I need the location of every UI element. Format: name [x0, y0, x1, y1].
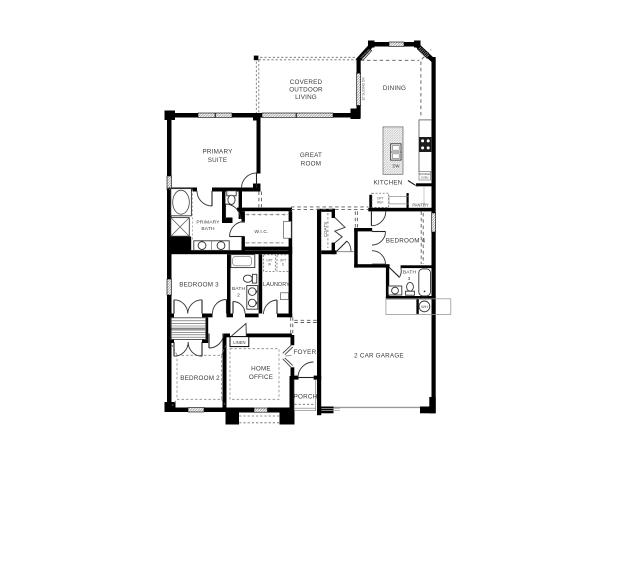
svg-text:REF: REF — [377, 201, 383, 205]
svg-text:PRIMARY: PRIMARY — [203, 149, 234, 156]
svg-text:KITCHEN: KITCHEN — [373, 180, 402, 187]
svg-text:BEDROOM 2: BEDROOM 2 — [180, 375, 220, 382]
svg-text:3: 3 — [408, 276, 411, 282]
svg-text:FOYER: FOYER — [294, 349, 317, 356]
svg-text:BATH: BATH — [232, 286, 246, 292]
svg-text:LIVING: LIVING — [295, 94, 317, 101]
svg-text:ROOM: ROOM — [301, 161, 321, 168]
svg-text:BATH: BATH — [201, 226, 215, 232]
svg-text:SUITE: SUITE — [208, 157, 228, 164]
svg-text:BATH: BATH — [403, 270, 417, 276]
svg-text:DW: DW — [393, 164, 400, 169]
svg-text:COATS: COATS — [323, 222, 328, 237]
svg-text:HOME: HOME — [251, 366, 271, 373]
svg-text:COVERED: COVERED — [290, 79, 323, 86]
svg-text:BEDROOM 4: BEDROOM 4 — [386, 237, 426, 244]
svg-text:GREAT: GREAT — [300, 152, 322, 159]
svg-text:OVEN: OVEN — [421, 175, 428, 179]
svg-text:W.I.C.: W.I.C. — [254, 229, 268, 235]
svg-text:12' SLIDING DR: 12' SLIDING DR — [362, 77, 366, 101]
svg-text:BEDROOM 3: BEDROOM 3 — [179, 282, 219, 289]
svg-text:W: W — [268, 263, 271, 267]
svg-text:OFFICE: OFFICE — [249, 374, 273, 381]
svg-text:WH: WH — [421, 304, 428, 309]
svg-text:PORCH: PORCH — [294, 394, 318, 401]
svg-text:2: 2 — [237, 293, 240, 299]
svg-text:PANTRY: PANTRY — [412, 203, 428, 208]
svg-text:DINING: DINING — [383, 85, 406, 92]
svg-text:OUTDOOR: OUTDOOR — [289, 87, 323, 94]
svg-text:PRIMARY: PRIMARY — [196, 220, 220, 226]
svg-text:2 CAR GARAGE: 2 CAR GARAGE — [354, 352, 404, 359]
svg-text:LINEN: LINEN — [233, 340, 245, 345]
svg-text:LAUNDRY: LAUNDRY — [263, 282, 290, 288]
